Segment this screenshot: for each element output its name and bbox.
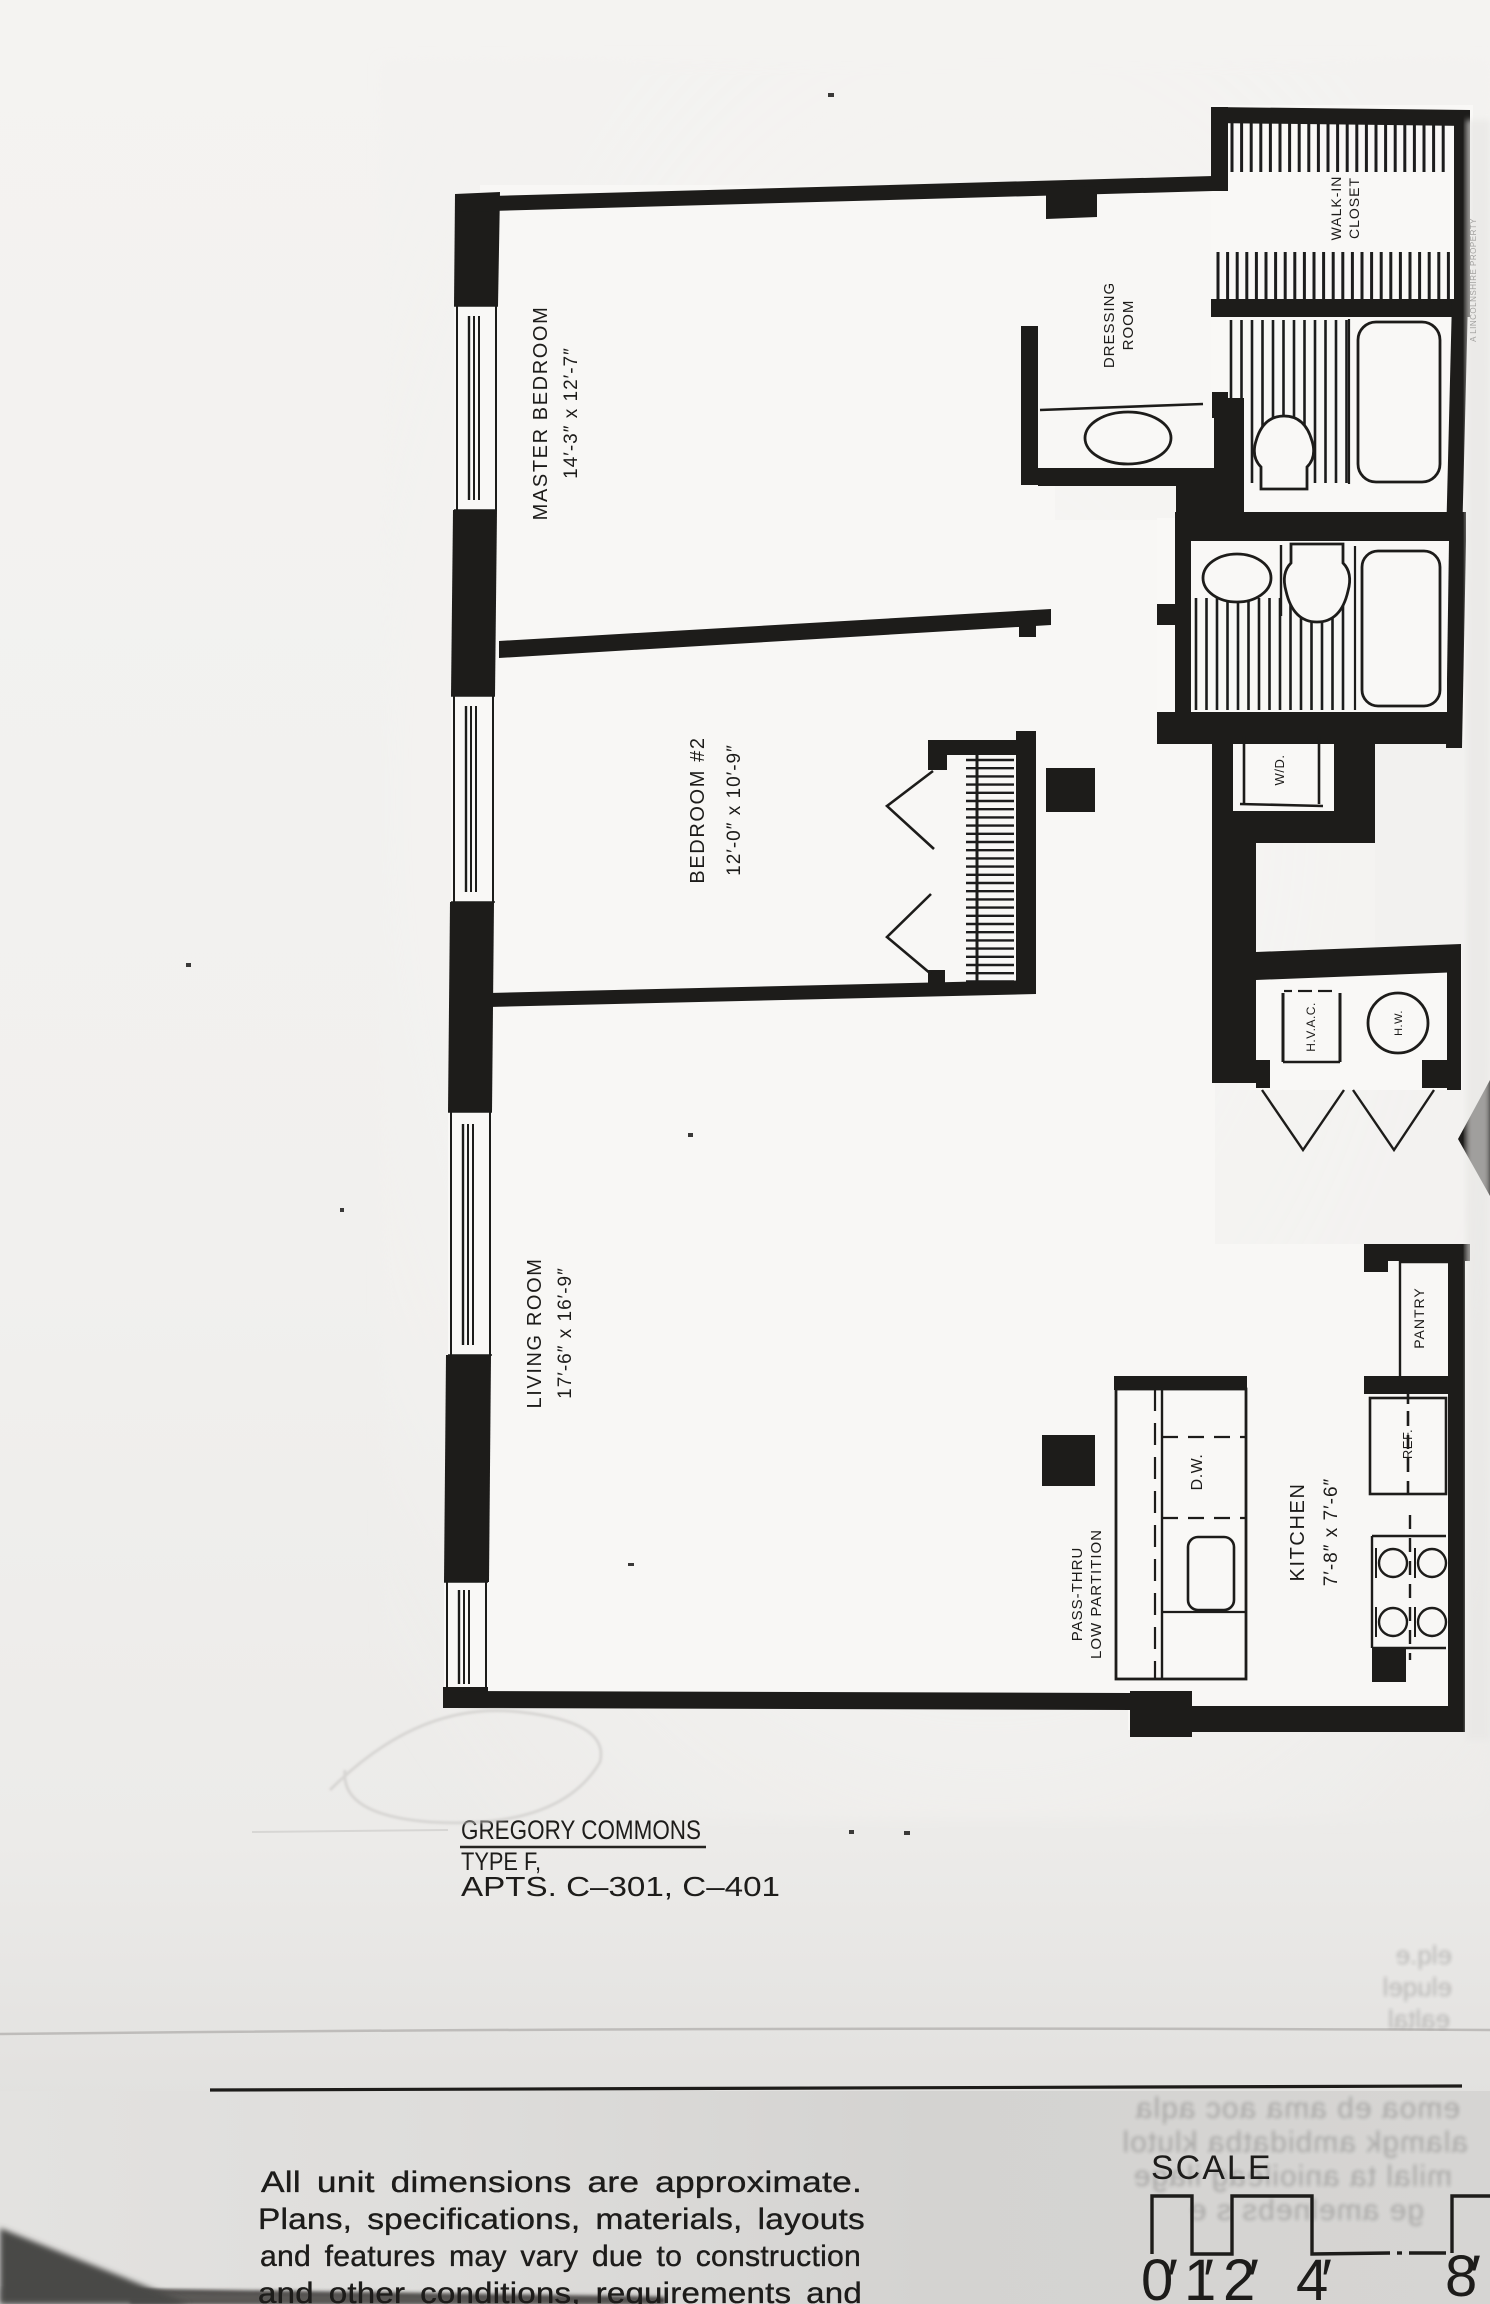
svg-text:Plans, specifications, materia: Plans, specifications, materials, layout… (258, 2203, 865, 2236)
svg-text:elq.e: elq.e (1396, 1940, 1452, 1970)
svg-text:DRESSING: DRESSING (1101, 282, 1118, 368)
svg-text:1′: 1′ (1184, 2248, 1216, 2304)
svg-text:H.W.: H.W. (1393, 1010, 1405, 1036)
svg-text:7′-8″ x 7′-6″: 7′-8″ x 7′-6″ (1321, 1478, 1342, 1587)
svg-text:BEDROOM #2: BEDROOM #2 (687, 736, 709, 883)
svg-text:CLOSET: CLOSET (1346, 177, 1362, 239)
svg-text:17′-6″ x 16′-9″: 17′-6″ x 16′-9″ (555, 1267, 576, 1399)
svg-text:ealtal: ealtal (1388, 2004, 1450, 2034)
svg-text:REF.: REF. (1400, 1429, 1415, 1459)
svg-text:emoa eb ama aoc aqla: emoa eb ama aoc aqla (1135, 2092, 1460, 2125)
svg-text:MASTER BEDROOM: MASTER BEDROOM (530, 306, 552, 521)
svg-text:and features may vary due to c: and features may vary due to constructio… (260, 2240, 861, 2273)
svg-text:8′: 8′ (1445, 2244, 1481, 2304)
svg-text:ge amelnebs s e: ge amelnebs s e (1189, 2194, 1424, 2227)
svg-text:12′-0″ x 10′-9″: 12′-0″ x 10′-9″ (724, 744, 745, 876)
svg-text:H.V.A.C.: H.V.A.C. (1304, 1002, 1318, 1052)
svg-text:PANTRY: PANTRY (1411, 1287, 1427, 1349)
svg-text:LIVING ROOM: LIVING ROOM (524, 1258, 546, 1409)
svg-text:All unit dimensions are approx: All unit dimensions are approximate. (261, 2166, 862, 2199)
svg-text:alamgk ambidatba klutol: alamgk ambidatba klutol (1121, 2126, 1468, 2159)
svg-text:D.W.: D.W. (1189, 1454, 1206, 1491)
svg-text:eluqel: eluqel (1383, 1972, 1452, 2002)
svg-text:4′: 4′ (1296, 2248, 1332, 2304)
svg-text:APTS. C–301, C–401: APTS. C–301, C–401 (461, 1871, 780, 1902)
svg-text:KITCHEN: KITCHEN (1287, 1483, 1309, 1582)
svg-text:2′: 2′ (1223, 2248, 1259, 2304)
svg-text:ROOM: ROOM (1120, 300, 1137, 351)
svg-text:WALK-IN: WALK-IN (1328, 176, 1344, 241)
svg-text:14′-3″ x 12′-7″: 14′-3″ x 12′-7″ (561, 347, 582, 479)
svg-text:LOW PARTITION: LOW PARTITION (1088, 1529, 1105, 1659)
svg-text:milal ta anioileag ilage: milal ta anioileag ilage (1133, 2160, 1452, 2193)
svg-text:PASS-THRU: PASS-THRU (1069, 1547, 1086, 1642)
svg-text:W/D.: W/D. (1272, 755, 1287, 786)
svg-text:0′: 0′ (1141, 2248, 1178, 2304)
svg-text:and other conditions, require: and other conditions, requirements and (258, 2277, 862, 2304)
